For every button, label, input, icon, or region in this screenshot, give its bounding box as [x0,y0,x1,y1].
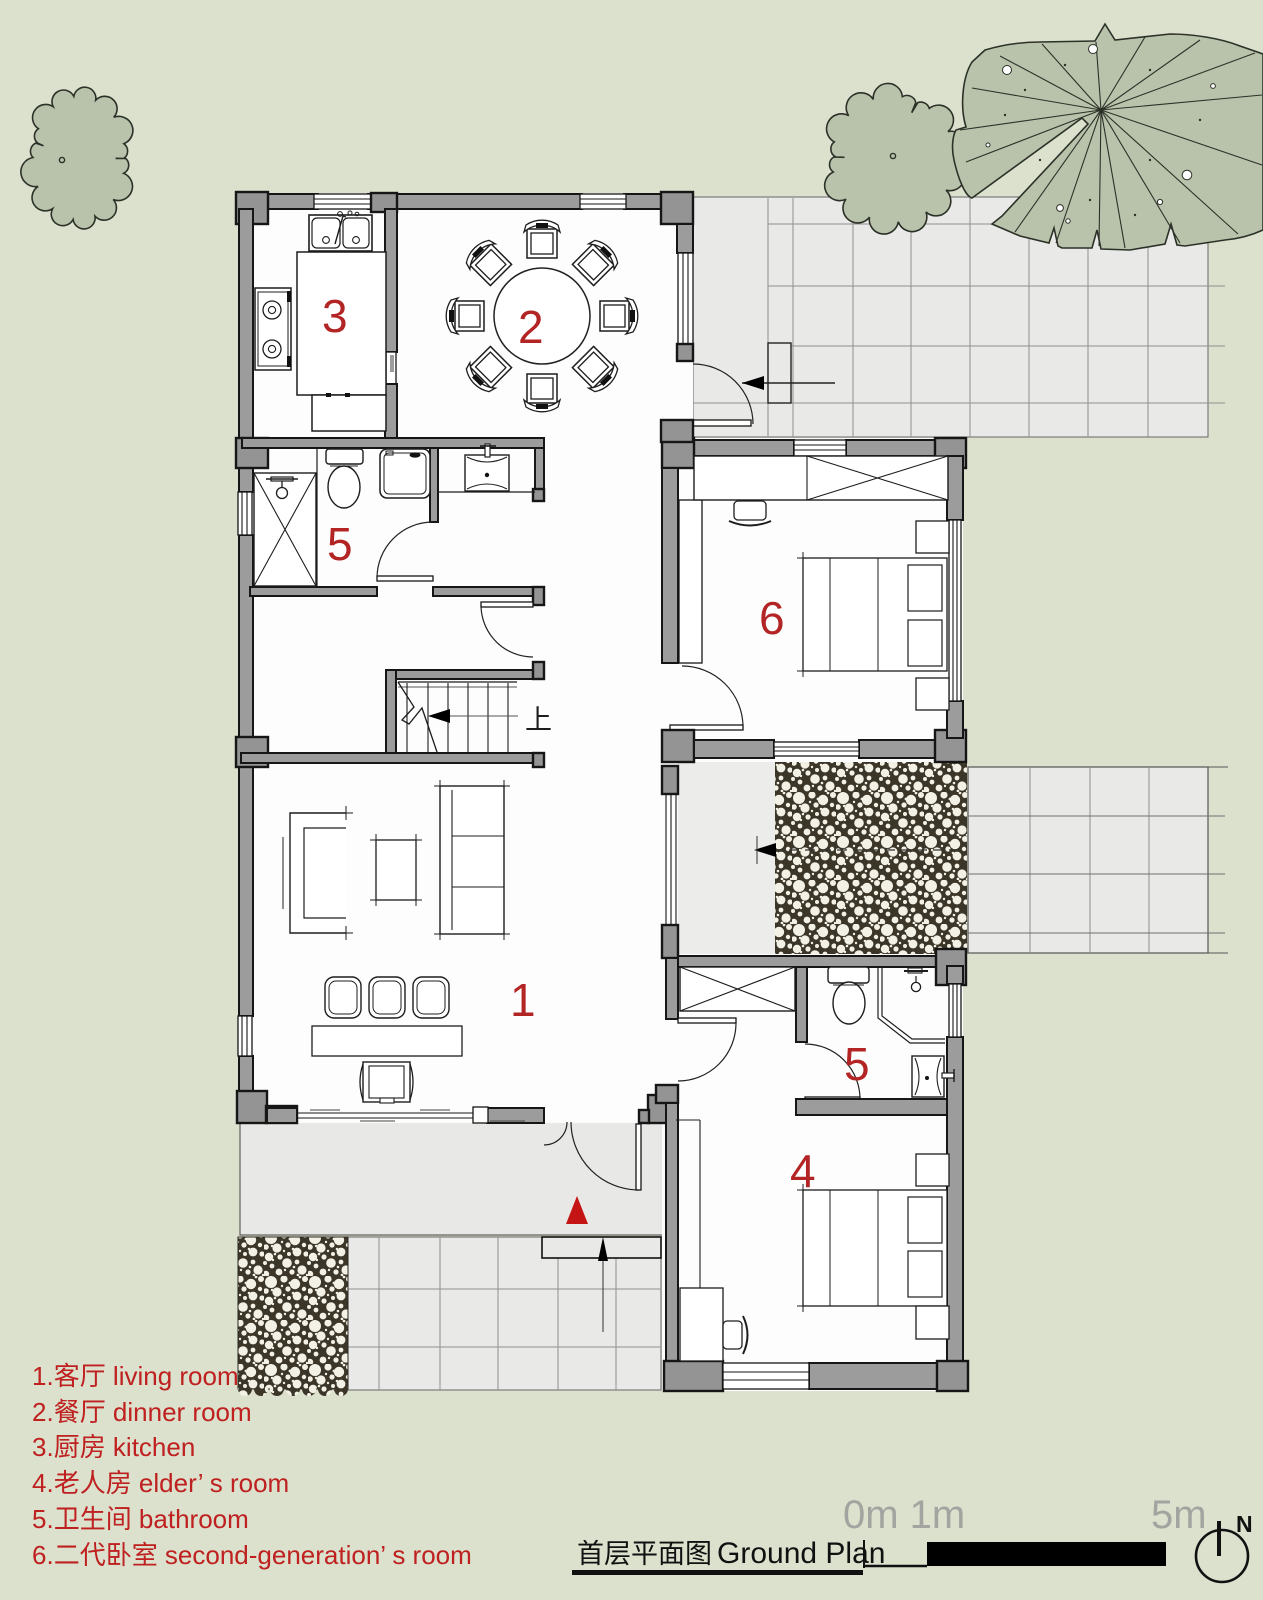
svg-text:6: 6 [759,592,785,644]
svg-text:3: 3 [322,290,348,342]
svg-text:4: 4 [790,1145,816,1197]
svg-text:0m 1m: 0m 1m [843,1493,965,1537]
svg-text:4.老人房 elder’ s room: 4.老人房 elder’ s room [32,1468,289,1498]
svg-text:上: 上 [525,705,552,735]
svg-text:1.客厅 living room: 1.客厅 living room [32,1361,239,1391]
svg-text:6.二代卧室 second-generation’ s ro: 6.二代卧室 second-generation’ s room [32,1540,472,1570]
svg-text:Ground Plan: Ground Plan [717,1537,885,1570]
svg-text:5: 5 [327,518,353,570]
svg-text:5m: 5m [1151,1493,1207,1537]
svg-text:3.厨房 kitchen: 3.厨房 kitchen [32,1432,195,1462]
svg-text:2: 2 [518,301,544,353]
svg-text:首层平面图: 首层平面图 [577,1539,712,1569]
svg-text:5.卫生间 bathroom: 5.卫生间 bathroom [32,1504,249,1534]
svg-text:N: N [1236,1511,1253,1537]
svg-text:5: 5 [844,1038,870,1090]
svg-text:2.餐厅 dinner room: 2.餐厅 dinner room [32,1397,252,1427]
svg-text:1: 1 [510,974,536,1026]
